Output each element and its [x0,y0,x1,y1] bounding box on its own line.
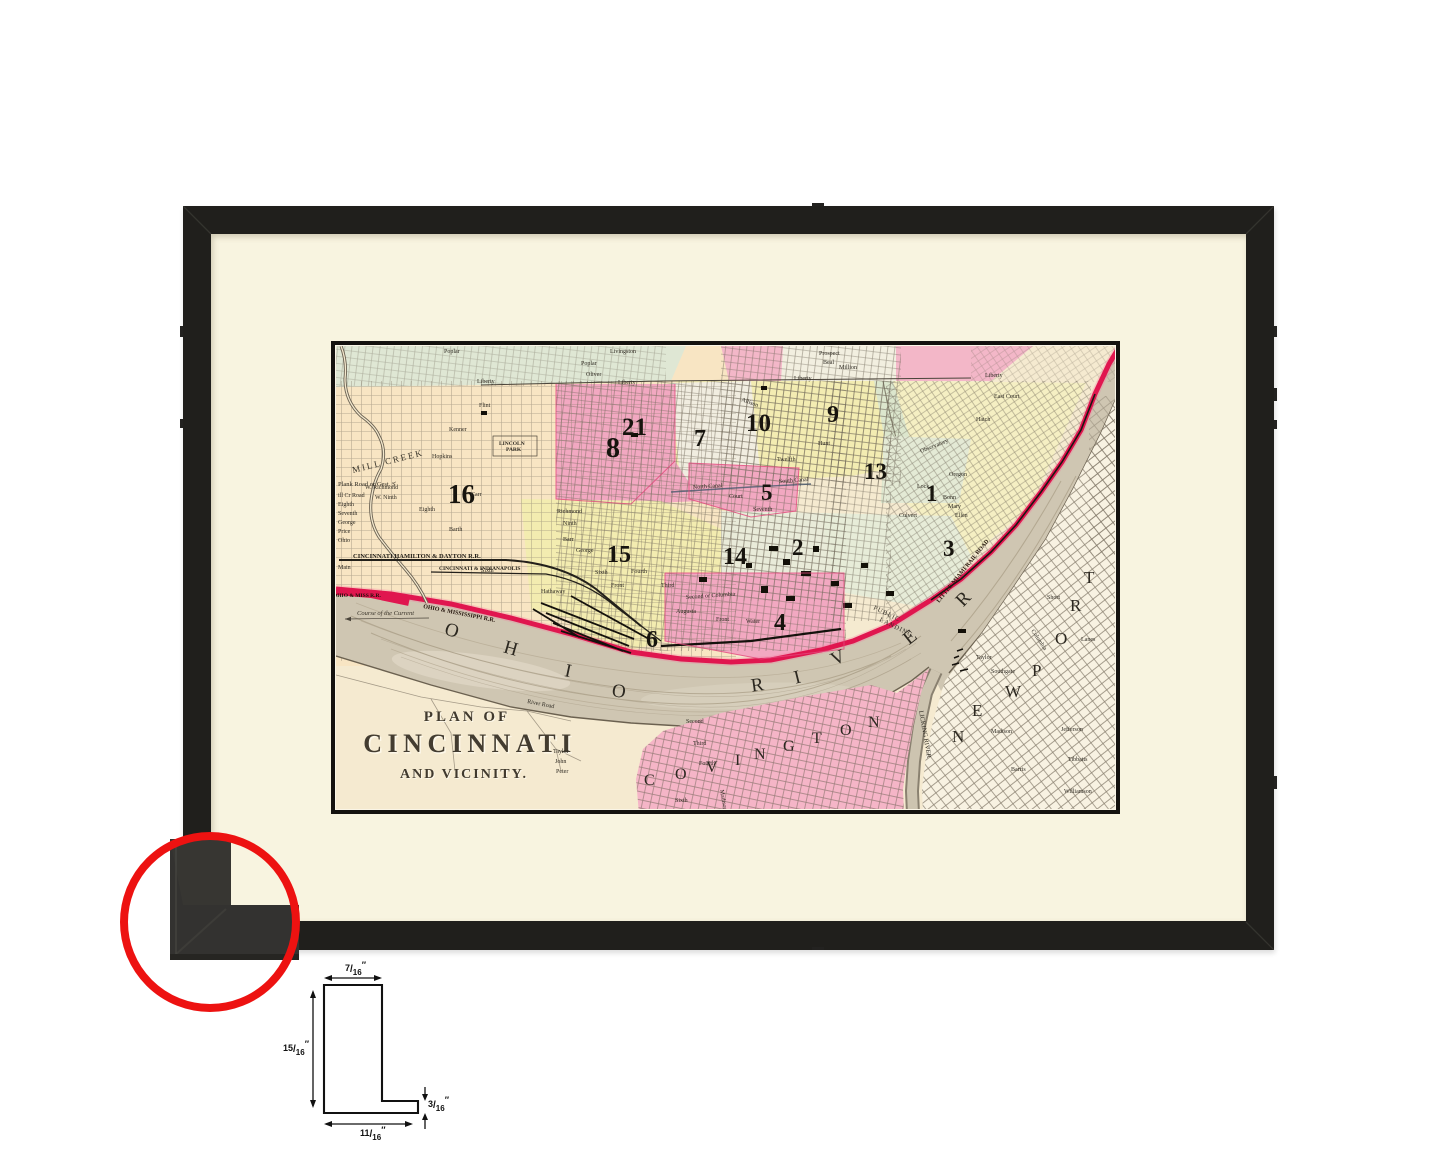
svg-text:Fourth: Fourth [631,569,647,575]
svg-text:Second: Second [686,719,704,725]
svg-text:John: John [555,759,566,765]
svg-text:Livingston: Livingston [610,349,636,355]
svg-text:3/16″: 3/16″ [428,1095,450,1113]
svg-text:N: N [952,727,964,746]
svg-text:PARK: PARK [506,447,522,453]
svg-text:I: I [735,752,740,769]
svg-text:7: 7 [694,426,706,452]
svg-text:5: 5 [761,480,773,505]
svg-text:Mary: Mary [948,504,961,510]
svg-text:Water: Water [746,619,760,625]
svg-text:W. Ninth: W. Ninth [375,495,397,501]
svg-text:Short: Short [1047,595,1060,601]
svg-text:Hunt: Hunt [818,441,830,447]
svg-text:Liberty: Liberty [794,376,812,382]
svg-text:T: T [812,730,822,747]
svg-text:Sixth: Sixth [675,798,688,804]
svg-text:Front: Front [716,617,729,623]
svg-text:11/16″: 11/16″ [360,1125,386,1142]
svg-text:Oregon: Oregon [949,472,967,478]
svg-text:East Court: East Court [994,394,1020,400]
svg-text:Sixth: Sixth [595,570,608,576]
svg-text:Liberty: Liberty [985,373,1003,379]
svg-text:Oliver: Oliver [586,372,601,378]
svg-text:Course of the Current: Course of the Current [357,610,414,617]
svg-text:Third: Third [661,583,674,589]
svg-text:Southgate: Southgate [991,669,1015,675]
svg-text:Poplar: Poplar [581,361,597,367]
svg-text:Price: Price [338,529,351,535]
svg-text:Barth: Barth [449,527,462,533]
svg-text:3: 3 [943,536,955,561]
svg-text:2: 2 [792,535,804,560]
svg-text:AND VICINITY.: AND VICINITY. [400,767,528,782]
svg-text:Taylor: Taylor [976,655,992,661]
svg-text:O: O [840,722,852,739]
svg-text:Beal: Beal [823,360,834,366]
svg-text:Hatch: Hatch [976,417,990,423]
svg-text:4: 4 [774,610,786,636]
svg-text:R: R [1070,596,1082,615]
svg-text:Ohio: Ohio [338,538,350,544]
svg-text:Williamson: Williamson [1064,789,1092,795]
svg-text:Lock: Lock [917,484,929,490]
svg-text:8: 8 [606,433,620,464]
svg-text:Peter: Peter [556,769,568,775]
svg-text:Jefferson: Jefferson [1061,726,1083,733]
svg-text:Eighth: Eighth [419,507,435,513]
svg-text:Flint: Flint [479,403,491,409]
svg-text:George: George [576,548,594,554]
svg-text:15/16″: 15/16″ [283,1039,310,1057]
svg-text:Carr: Carr [471,492,482,498]
svg-text:Bonn: Bonn [943,495,956,501]
svg-text:N: N [868,714,880,731]
svg-text:N: N [754,746,766,763]
svg-text:CINCINNATI HAMILTON & DAYTON R: CINCINNATI HAMILTON & DAYTON R.R. [353,553,481,560]
svg-text:Barris: Barris [1011,767,1026,773]
svg-text:G: G [783,738,795,755]
svg-text:E: E [972,701,982,720]
svg-text:Eighth: Eighth [338,502,354,508]
svg-text:10: 10 [746,410,771,437]
svg-text:Court: Court [729,494,743,500]
svg-text:George: George [338,520,356,526]
svg-text:Madison: Madison [991,729,1012,735]
svg-text:Seventh: Seventh [753,507,772,513]
svg-text:Richmond: Richmond [557,509,582,515]
svg-text:21: 21 [622,414,647,441]
svg-text:W: W [1005,682,1022,701]
svg-text:Taylor: Taylor [553,749,569,755]
svg-text:Ellen: Ellen [955,513,968,519]
svg-text:OHIO & MISS R.R.: OHIO & MISS R.R. [333,593,381,599]
svg-text:Main: Main [338,565,351,571]
svg-text:6: 6 [646,627,658,653]
svg-text:Culvert: Culvert [899,513,917,519]
svg-text:Augusta: Augusta [676,609,696,615]
svg-text:Kenner: Kenner [449,427,467,433]
svg-text:O: O [611,680,628,703]
svg-text:Prospect: Prospect [819,351,840,357]
svg-text:T: T [1084,568,1095,587]
svg-text:Liberty: Liberty [618,380,636,386]
svg-text:CINCINNATI: CINCINNATI [363,729,576,758]
svg-text:Hathaway: Hathaway [541,589,565,595]
svg-text:Plank Road or Gest. S̒: Plank Road or Gest. S̒ [338,481,397,488]
svg-text:Poplar: Poplar [444,349,460,355]
svg-text:C: C [644,772,655,789]
svg-text:Ninth: Ninth [563,521,577,527]
svg-text:Hopkins: Hopkins [432,454,453,460]
svg-text:15: 15 [607,542,631,568]
svg-text:ill Cr Road: ill Cr Road [338,493,365,499]
svg-text:Million: Million [839,365,857,371]
svg-text:Lanes: Lanes [1081,637,1096,643]
svg-text:Front: Front [611,583,624,589]
svg-text:14: 14 [723,544,747,570]
svg-text:O: O [1055,629,1067,648]
svg-text:13: 13 [864,459,887,484]
svg-text:7/16″: 7/16″ [345,960,367,977]
svg-text:PLAN OF: PLAN OF [424,709,510,725]
svg-text:Seventh: Seventh [338,511,357,517]
svg-text:CINCINNATI & INDIANAPOLIS: CINCINNATI & INDIANAPOLIS [439,566,521,572]
svg-text:Fourth: Fourth [699,761,715,767]
svg-text:Third: Third [693,741,706,747]
svg-text:Tibbatts: Tibbatts [1068,757,1088,763]
svg-text:Twelfth: Twelfth [777,456,796,463]
svg-text:Liberty: Liberty [477,379,495,385]
svg-text:O: O [675,766,687,783]
svg-text:9: 9 [827,402,839,428]
svg-text:P: P [1032,661,1041,680]
svg-text:Barr: Barr [563,537,574,543]
